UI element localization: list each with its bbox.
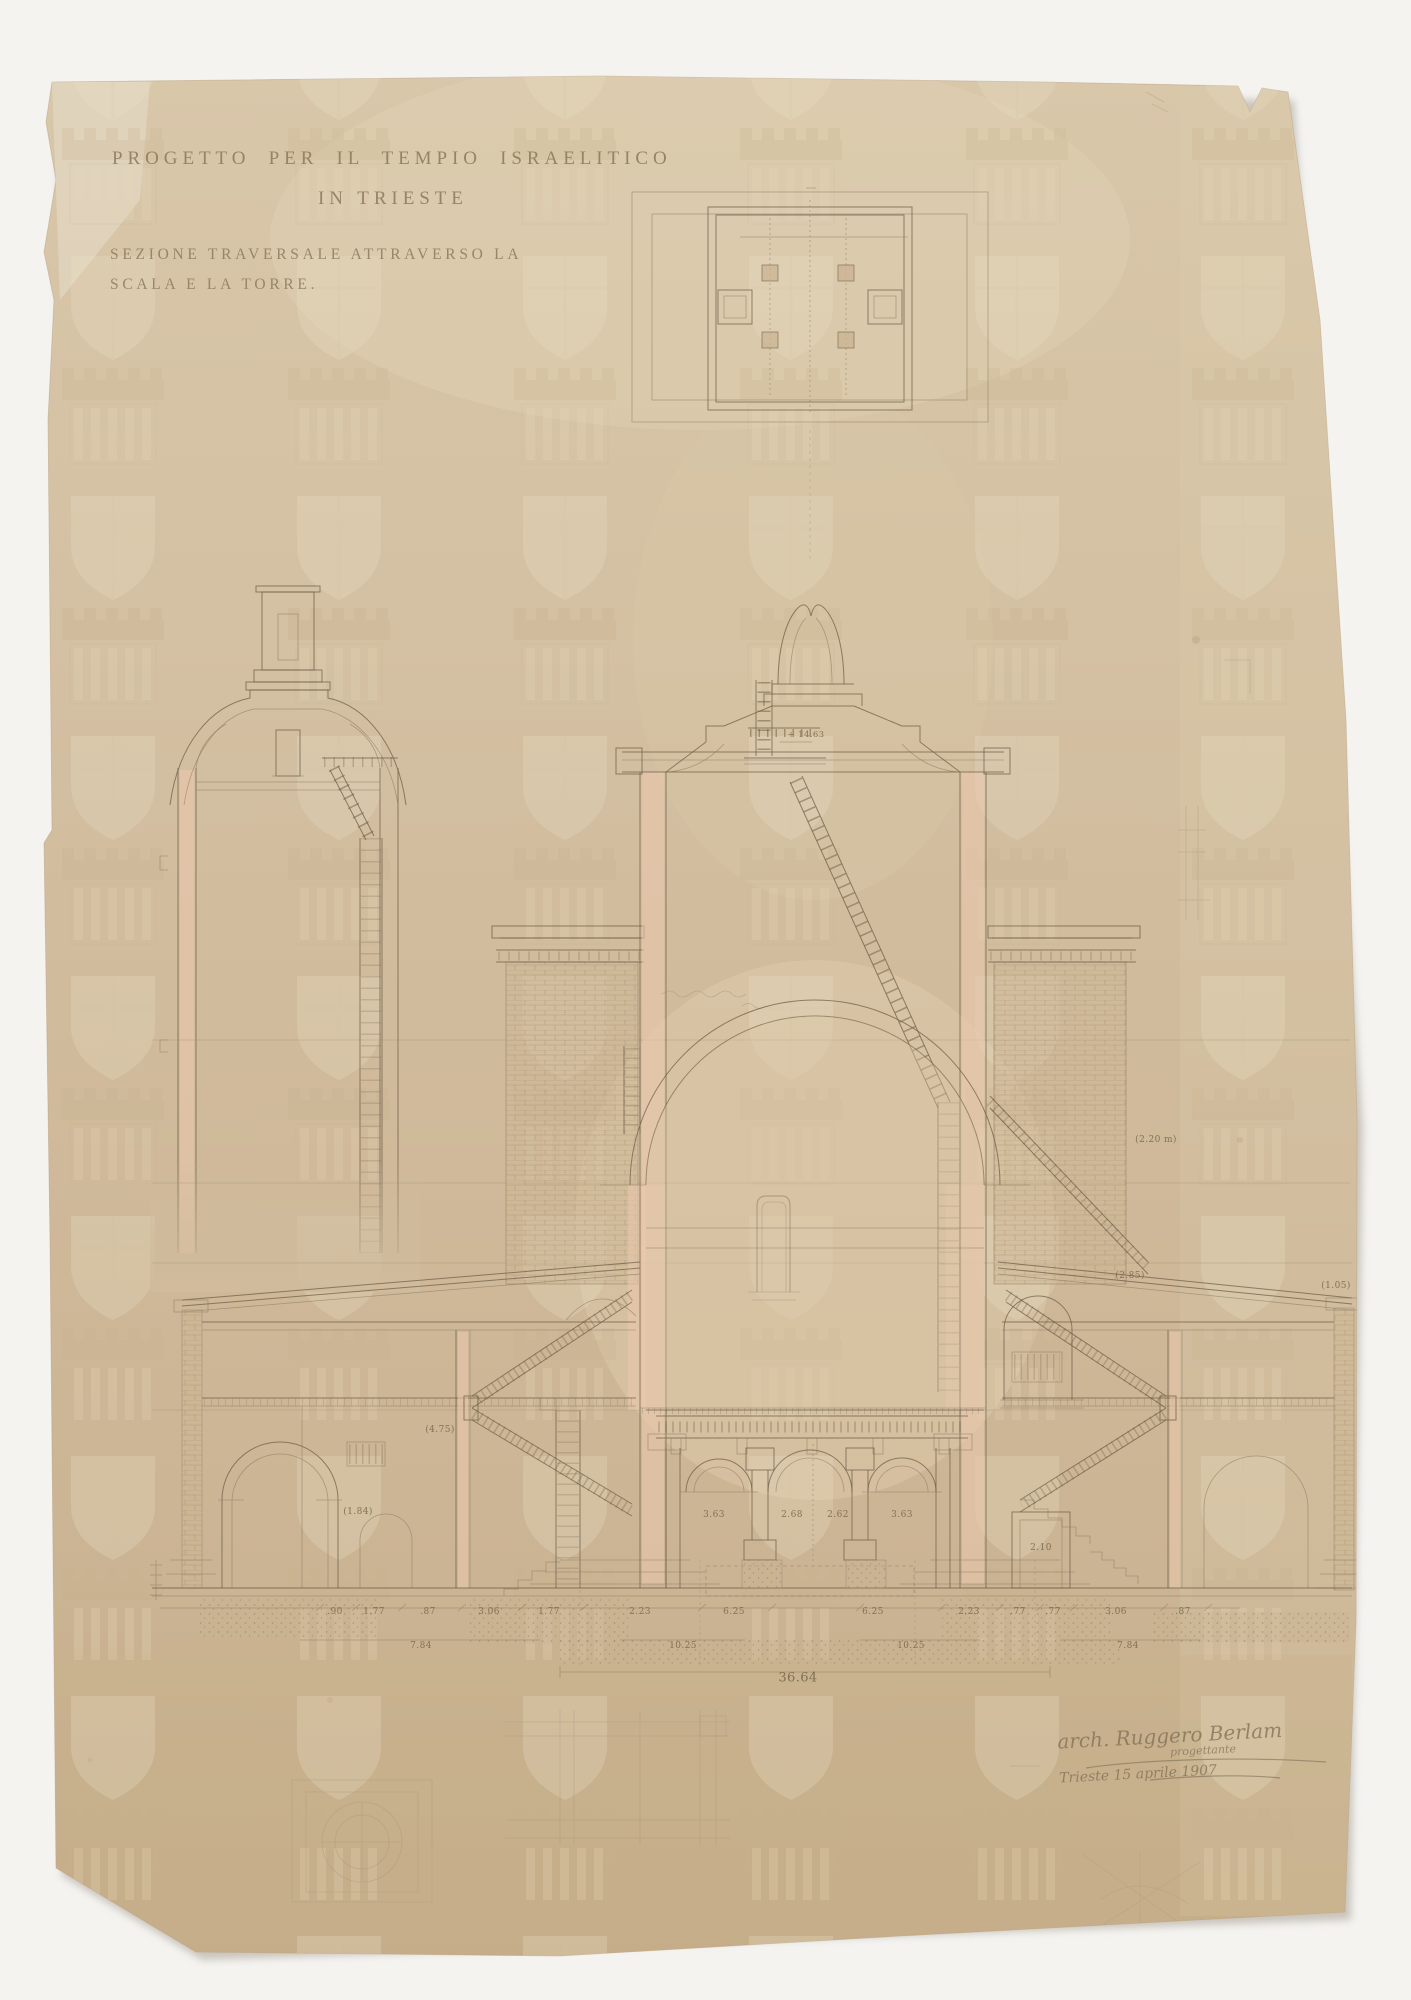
dimension-label: 10.25 <box>669 1641 697 1651</box>
dimension-label: .77 <box>1010 1607 1026 1617</box>
dimension-label: 3.06 <box>1105 1607 1127 1617</box>
sheet-subtitle-line2: SCALA E LA TORRE. <box>110 276 318 294</box>
dimension-label: (2.20 m) <box>1135 1135 1177 1145</box>
dimension-label: 2.23 <box>958 1607 980 1617</box>
brick-buttress-left <box>492 926 644 1284</box>
dimension-label: 3.63 <box>891 1510 913 1520</box>
dimension-label: 2.62 <box>827 1510 849 1520</box>
dimension-label: (4.75) <box>425 1425 454 1435</box>
dimension-label: 2.10 <box>1030 1543 1052 1553</box>
dimension-label: .90 <box>327 1607 343 1617</box>
dimension-label: 1.77 <box>538 1607 560 1617</box>
dimension-label: 3.06 <box>478 1607 500 1617</box>
dimension-label: .77 <box>1045 1607 1061 1617</box>
dimension-label: .87 <box>420 1607 436 1617</box>
dimension-label: 6.25 <box>723 1607 745 1617</box>
dimension-label: 1.77 <box>363 1607 385 1617</box>
sheet-title-line2: IN TRIESTE <box>318 188 468 210</box>
dimension-label: 10.25 <box>897 1641 925 1651</box>
dimension-label: .87 <box>1175 1607 1191 1617</box>
scanned-drawing-sheet: PROGETTO PER IL TEMPIO ISRAELITICO IN TR… <box>0 0 1411 2000</box>
dimension-label: (1.84) <box>343 1507 372 1517</box>
dimension-label: 3.63 <box>703 1510 725 1520</box>
dimension-label: (1.05) <box>1321 1281 1350 1291</box>
dimension-label: (2.85) <box>1115 1271 1144 1281</box>
sheet-subtitle-line1: SEZIONE TRAVERSALE ATTRAVERSO LA <box>110 246 522 264</box>
dimension-label: 2.68 <box>781 1510 803 1520</box>
sheet-title-line1: PROGETTO PER IL TEMPIO ISRAELITICO <box>112 148 672 170</box>
dimension-label: 7.84 <box>410 1641 432 1651</box>
shield-watermark-pattern <box>0 60 1411 2000</box>
dimension-label: 7.84 <box>1117 1641 1139 1651</box>
dimension-label: + 14.63 <box>788 730 825 740</box>
dimension-label: 36.64 <box>778 1671 817 1686</box>
dimension-label: 2.23 <box>629 1607 651 1617</box>
dimension-label: 6.25 <box>862 1607 884 1617</box>
drawing-canvas <box>0 0 1411 2000</box>
